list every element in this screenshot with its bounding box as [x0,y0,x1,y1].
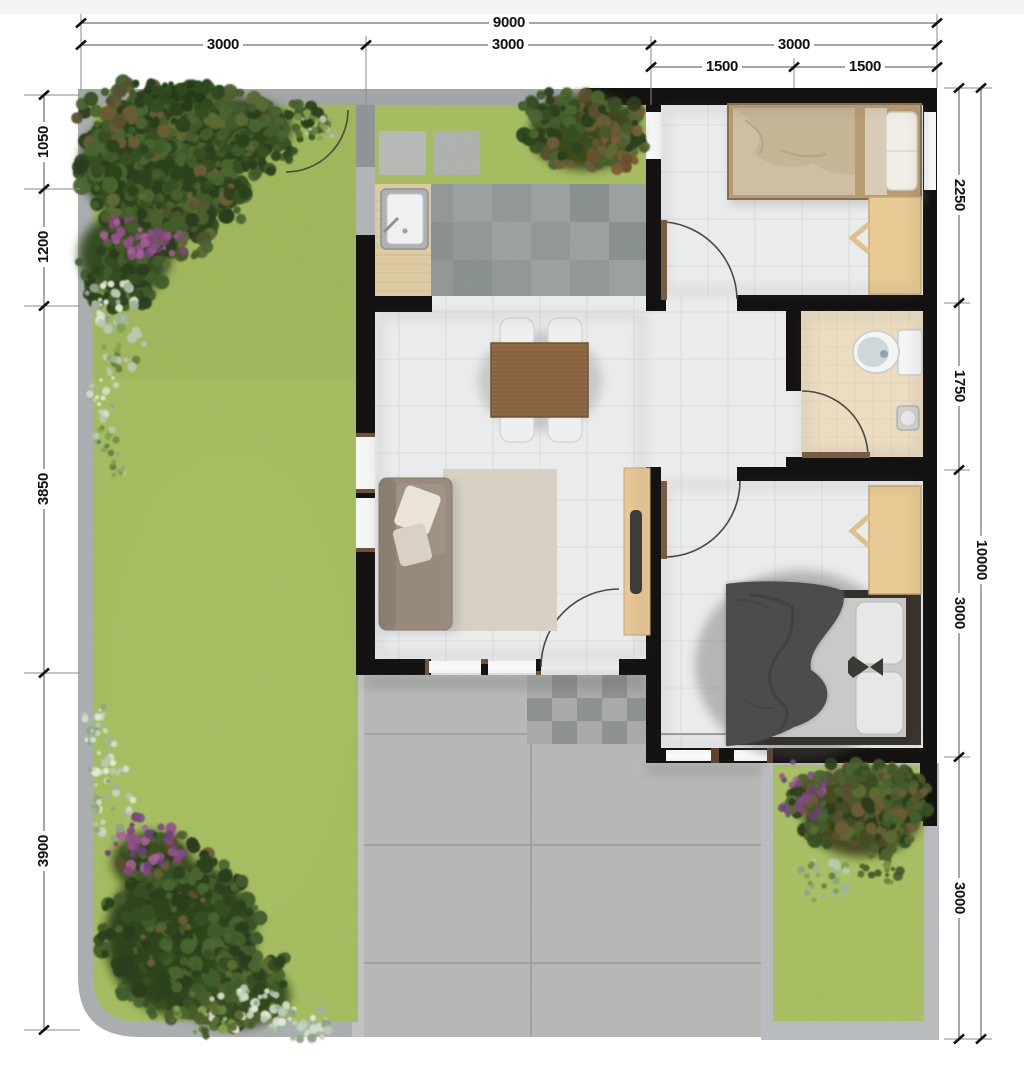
svg-text:10000: 10000 [973,540,990,580]
svg-text:1050: 1050 [35,126,52,158]
svg-text:1200: 1200 [35,231,52,263]
svg-text:3850: 3850 [35,473,52,505]
svg-text:3000: 3000 [778,36,810,53]
svg-text:3000: 3000 [951,882,968,914]
svg-text:3000: 3000 [951,597,968,629]
svg-text:3000: 3000 [492,36,524,53]
svg-text:2250: 2250 [951,179,968,211]
svg-text:9000: 9000 [493,14,525,31]
svg-text:1500: 1500 [706,58,738,75]
svg-text:3000: 3000 [207,36,239,53]
svg-text:1500: 1500 [849,58,881,75]
svg-text:3900: 3900 [35,835,52,867]
svg-text:1750: 1750 [951,370,968,402]
